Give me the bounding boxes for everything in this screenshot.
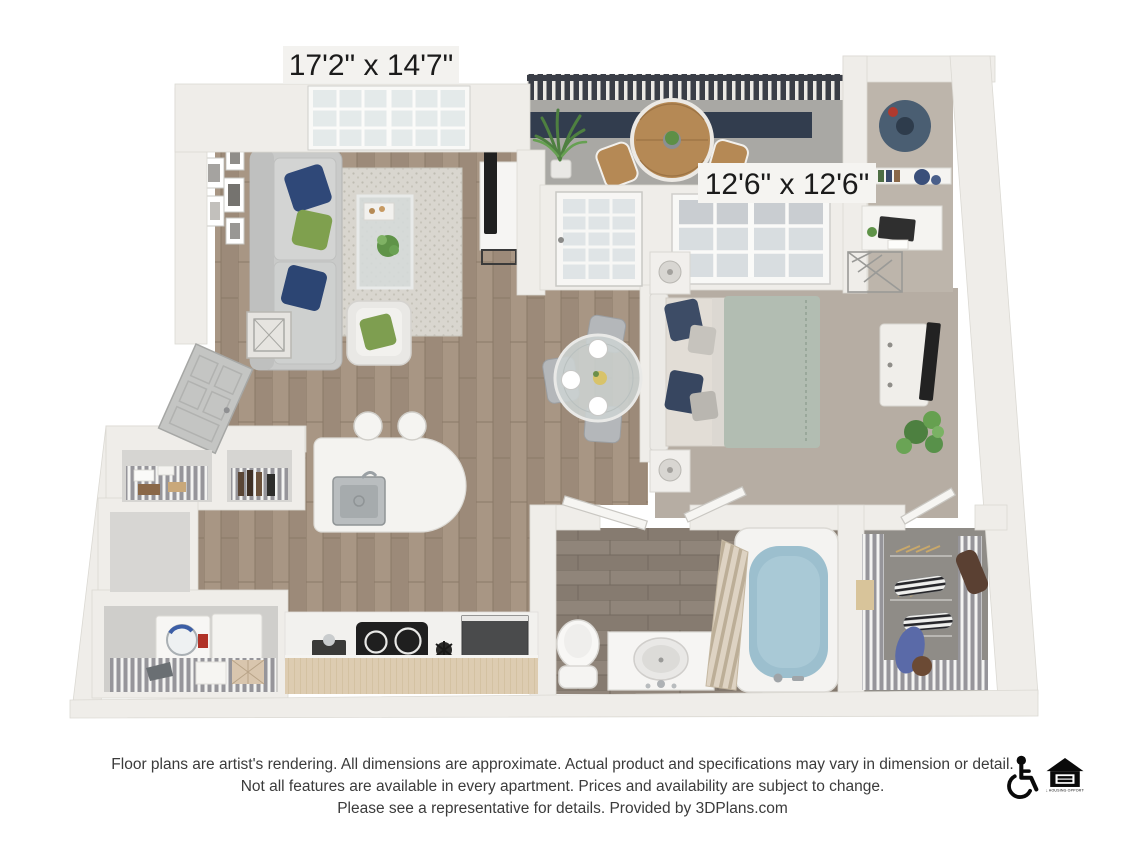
pendant-light [354,412,382,440]
bed [650,294,820,450]
toilet [557,620,599,688]
pendant-light [398,412,426,440]
door-handle [558,237,564,243]
living-room-dimension-label: 17'2" x 14'7" [283,46,459,83]
armchair [347,301,411,365]
equal-housing-opportunity-icon: EQUAL HOUSING OPPORTUNITY [1046,755,1084,801]
green-pillow [291,209,334,252]
towel [196,662,226,684]
disclaimer: Floor plans are artist's rendering. All … [0,757,1125,823]
tub-faucet [774,674,783,683]
bathtub [735,528,838,692]
kitchen-counter [285,612,538,694]
coffee-table [358,196,412,288]
bag [912,656,932,676]
disclaimer-line-1: Floor plans are artist's rendering. All … [0,757,1125,773]
plate [562,371,581,390]
nightstand [650,252,690,294]
bedroom-dimension-text: 12'6" x 12'6" [705,168,870,201]
plate [589,340,608,359]
bowl [914,169,930,185]
disclaimer-line-3: Please see a representative for details.… [0,801,1125,817]
balcony-french-door [556,192,642,286]
wheelchair-accessible-icon [1006,755,1041,799]
living-room-window [308,86,470,150]
floor-plan-rendering: 17'2" x 14'7" 12'6" x 12'6" [0,0,1125,844]
equal-housing-caption: EQUAL HOUSING OPPORTUNITY [1046,789,1084,793]
cabinet-front [285,656,538,694]
pantry-shelves [122,450,292,502]
kitchen-island [314,438,466,532]
laundry-room [104,606,278,692]
faucet [657,680,665,688]
balcony-railing [527,74,867,100]
bathroom-vanity [608,632,714,690]
table-plant [665,131,679,145]
laptop [878,216,916,242]
tv-screen [484,146,497,234]
bedroom-dresser-tv [880,322,941,406]
storage-niche [110,512,190,592]
footer-icons: EQUAL HOUSING OPPORTUNITY [1006,755,1084,801]
bedroom-dimension-label: 12'6" x 12'6" [698,163,876,203]
tv-media-console [480,146,518,264]
nightstand [650,450,690,492]
dryer [212,614,262,660]
plate [589,397,608,416]
side-table [247,312,291,358]
serving-tray [364,203,394,220]
living-room-dimension-text: 17'2" x 14'7" [289,49,454,82]
disclaimer-line-2: Not all features are available in every … [0,779,1125,795]
bedroom-window [672,194,830,284]
floor-plan-page: 17'2" x 14'7" 12'6" x 12'6" Floor plans … [0,0,1125,844]
